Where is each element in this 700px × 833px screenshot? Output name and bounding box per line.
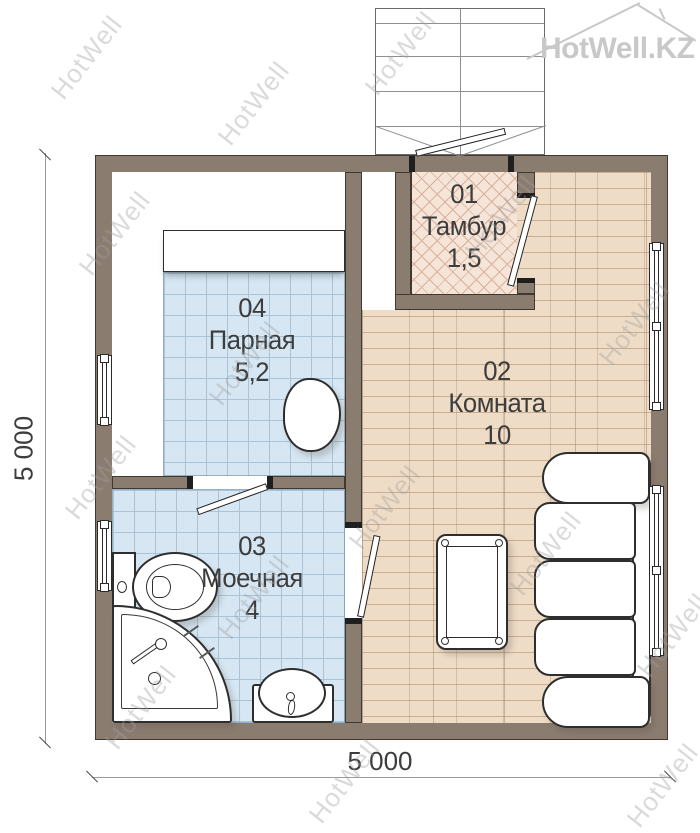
- window-right-lower: [649, 486, 664, 656]
- watermark-text: HotWell: [45, 10, 129, 106]
- window-cap: [652, 485, 661, 494]
- sofa-armrest-top: [542, 452, 650, 504]
- sofa-cushion: [534, 502, 636, 560]
- table-leg: [495, 539, 503, 547]
- window-glass: [102, 359, 107, 421]
- table-leg: [441, 539, 449, 547]
- floor-plan-page: { "logo": { "brand": "HotWell.KZ" }, "wa…: [0, 0, 700, 819]
- door-jamb: [345, 618, 362, 624]
- partition-steam-washing-left: [112, 476, 193, 489]
- step-center-line: [460, 9, 461, 154]
- watermark-text: HotWell: [212, 56, 296, 152]
- window-cap: [100, 354, 109, 363]
- door-jamb: [187, 476, 193, 489]
- shower-drain: [148, 672, 161, 685]
- window-cap: [100, 417, 109, 426]
- room-area: 1,5: [447, 242, 481, 274]
- door-jamb: [517, 278, 535, 283]
- window-cap: [100, 583, 109, 592]
- floor-niche: [362, 172, 395, 310]
- vestibule-wall-bottom: [395, 294, 535, 310]
- window-cap: [652, 242, 661, 251]
- window-left-upper: [97, 355, 112, 425]
- room-area: 10: [483, 419, 511, 451]
- room-label-steam: 04 Парная 5,2: [186, 292, 319, 388]
- window-glass: [102, 525, 107, 587]
- room-area: 4: [245, 594, 259, 626]
- window-cap: [100, 520, 109, 529]
- partition-steam-washing-right: [267, 476, 345, 489]
- door-jamb: [345, 522, 362, 528]
- toilet-drain: [152, 576, 171, 598]
- window-right-upper: [649, 243, 664, 410]
- dimension-label-height: 5 000: [6, 392, 42, 504]
- table-leg: [441, 637, 449, 645]
- room-number: 03: [238, 530, 266, 562]
- door-jamb: [508, 156, 514, 172]
- door-jamb: [409, 156, 415, 172]
- room-number: 02: [483, 355, 511, 387]
- entrance-steps: [375, 8, 545, 155]
- sofa-armrest-bottom: [542, 676, 650, 728]
- room-number: 01: [450, 178, 478, 210]
- window-cap: [652, 648, 661, 657]
- brand-logo: HotWell.KZ: [540, 32, 694, 66]
- coffee-table-top: [446, 546, 498, 638]
- table-leg: [495, 637, 503, 645]
- dimension-line-vertical: [45, 153, 46, 744]
- room-number: 04: [238, 292, 266, 324]
- sofa-cushion: [534, 618, 636, 676]
- shower-knob: [155, 638, 167, 650]
- door-jamb: [267, 476, 273, 489]
- room-name: Парная: [209, 324, 295, 356]
- toilet-flush-button: [117, 581, 127, 593]
- window-cap: [652, 566, 661, 575]
- sauna-bench: [163, 230, 345, 272]
- dimension-label-width: 5 000: [320, 746, 440, 777]
- room-label-living: 02 Комната 10: [431, 355, 564, 451]
- partition-left-zone-lower: [345, 618, 362, 723]
- room-name: Тамбур: [422, 210, 506, 242]
- dimension-line-horizontal: [92, 777, 671, 778]
- window-cap: [652, 322, 661, 331]
- partition-left-zone: [345, 172, 362, 528]
- sauna-stove: [283, 378, 341, 452]
- room-label-washing: 03 Моечная 4: [186, 530, 319, 626]
- sofa-cushion: [534, 560, 636, 618]
- room-label-vestibule: 01 Тамбур 1,5: [407, 178, 521, 274]
- window-cap: [652, 402, 661, 411]
- room-area: 5,2: [235, 356, 269, 388]
- room-name: Комната: [448, 387, 545, 419]
- window-left-lower: [97, 521, 112, 591]
- room-name: Моечная: [201, 562, 303, 594]
